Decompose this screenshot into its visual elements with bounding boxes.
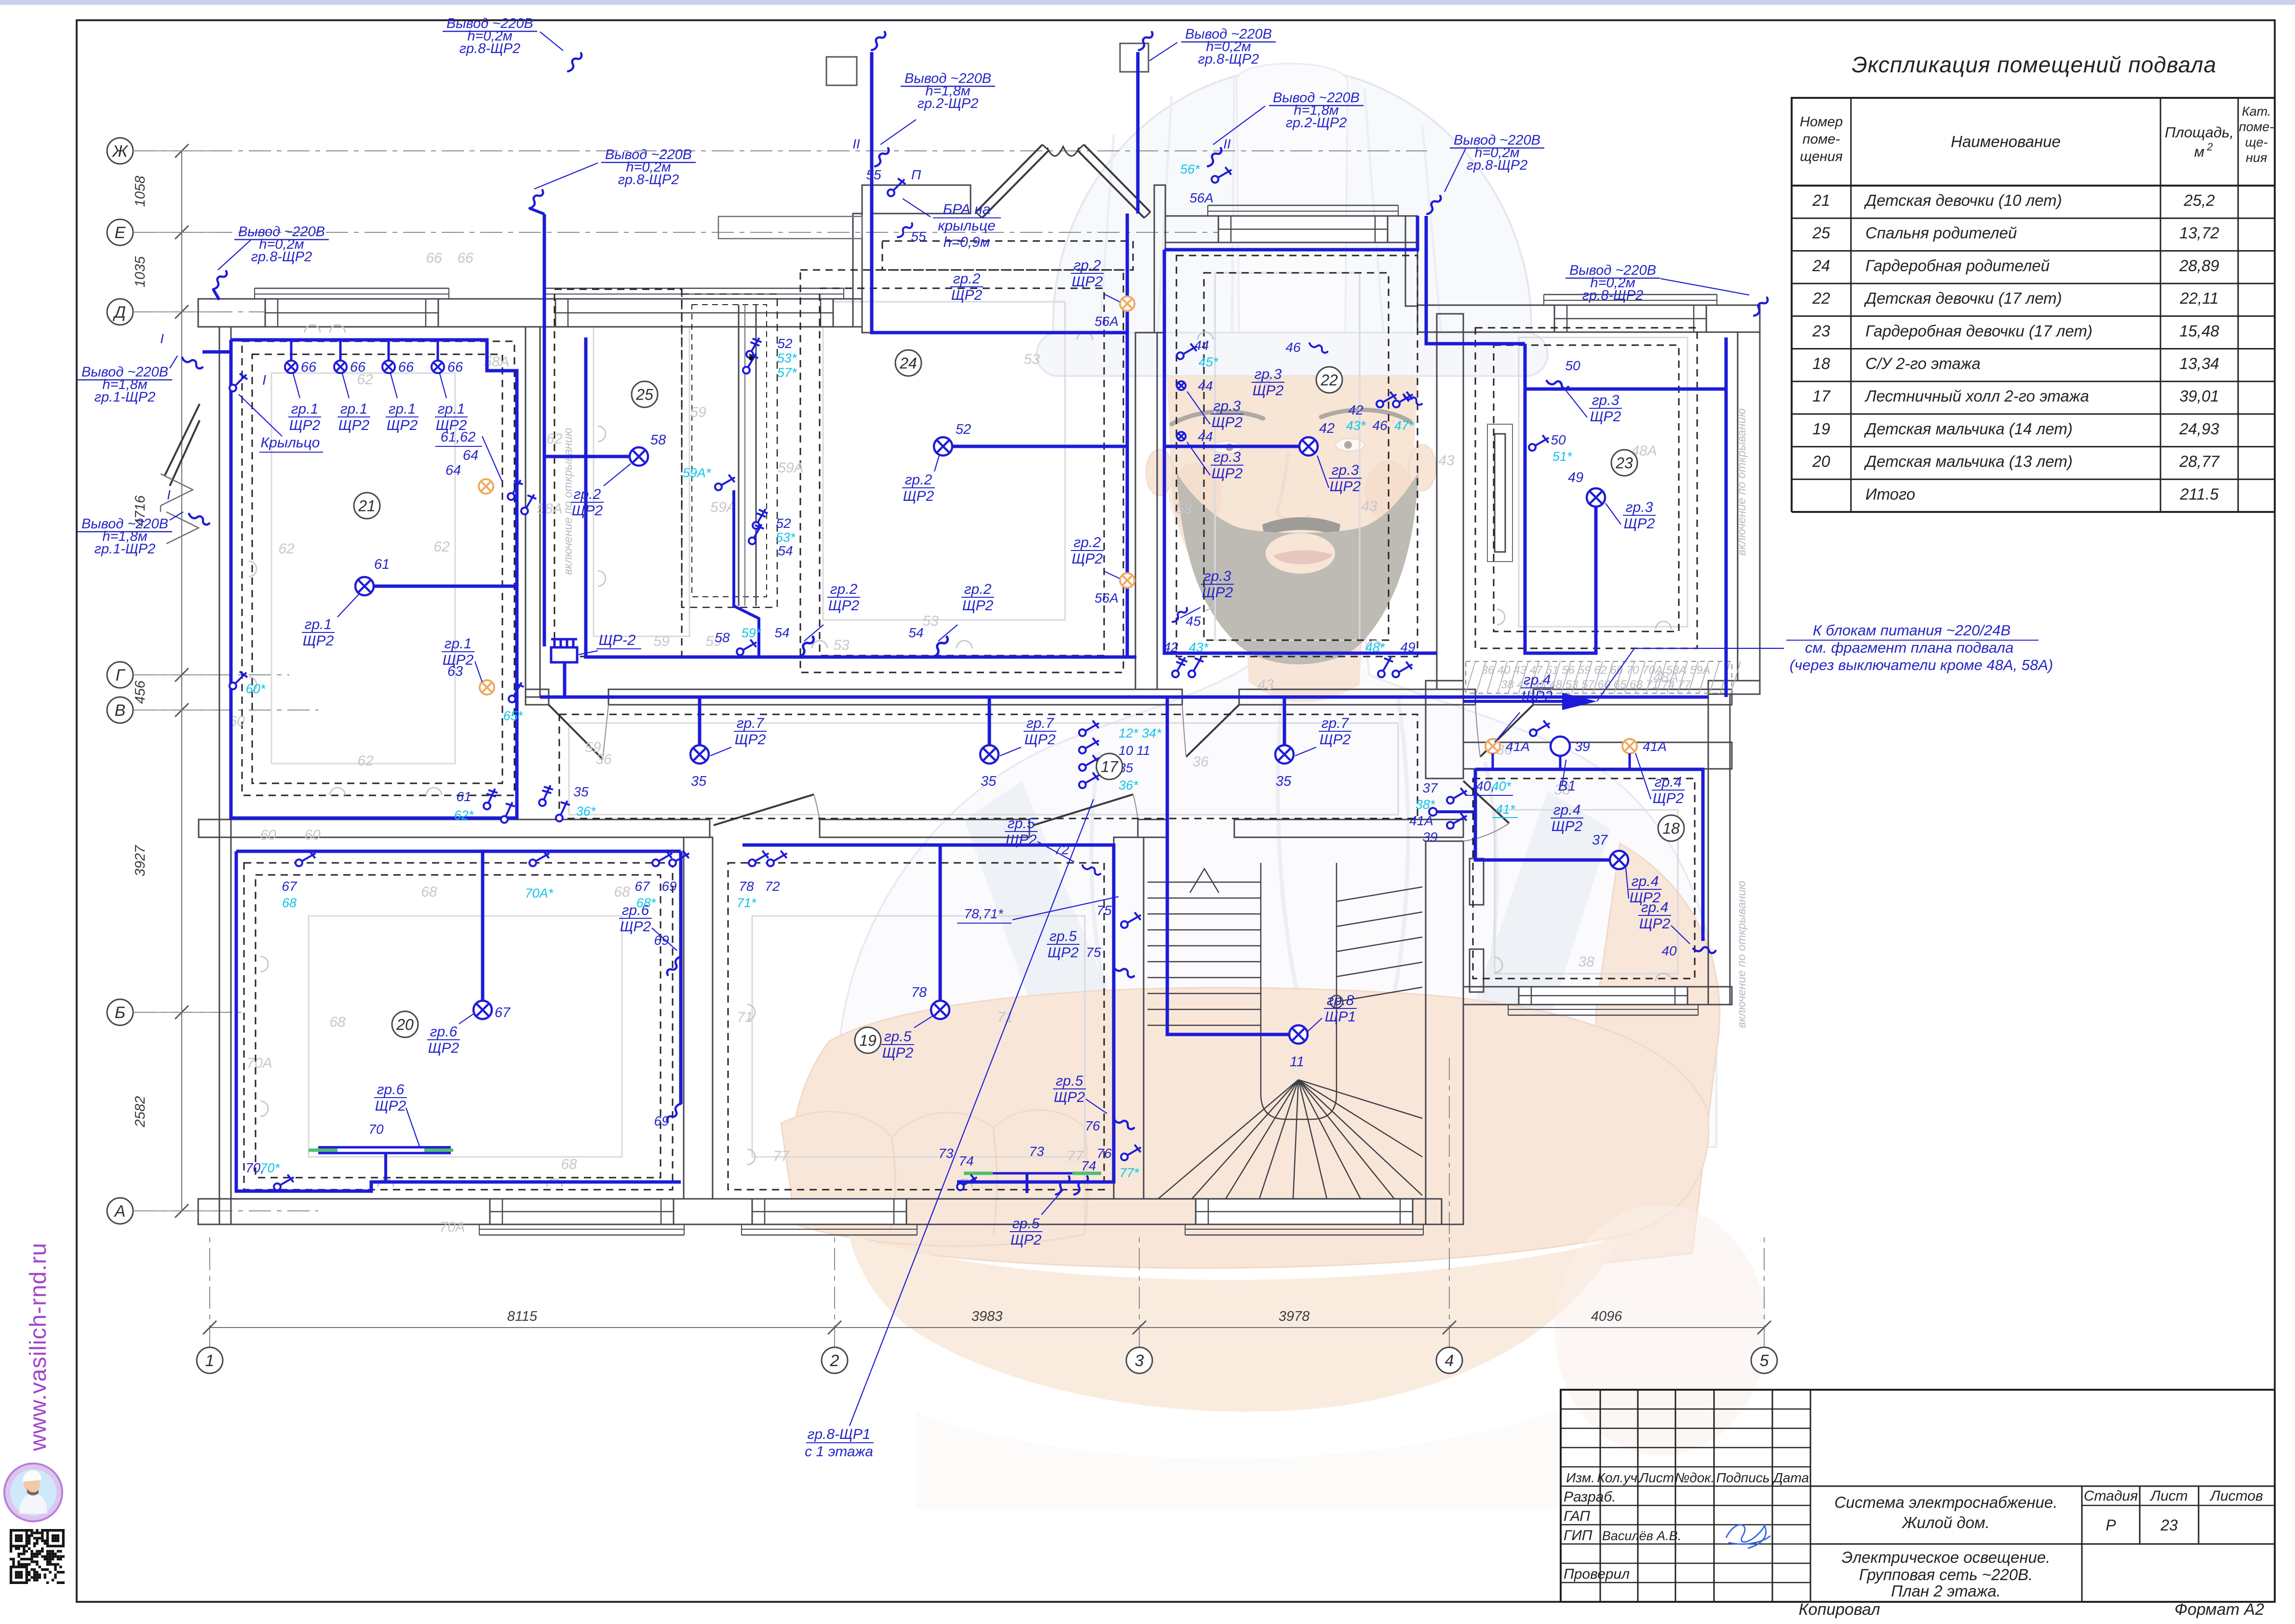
svg-text:71*: 71*	[737, 896, 757, 910]
svg-text:10 11: 10 11	[1119, 743, 1150, 758]
svg-text:А: А	[114, 1202, 126, 1221]
svg-text:К блокам питания ~220/24В: К блокам питания ~220/24В	[1813, 622, 2011, 639]
svg-text:55: 55	[866, 167, 881, 182]
svg-text:35: 35	[1276, 774, 1292, 789]
svg-text:41А: 41А	[1643, 739, 1667, 754]
svg-text:ще-: ще-	[2245, 135, 2268, 149]
svg-text:ЩР2: ЩР2	[303, 633, 334, 649]
svg-text:Лист: Лист	[2149, 1488, 2187, 1504]
svg-text:76: 76	[1085, 1118, 1100, 1133]
svg-text:гр.1: гр.1	[389, 401, 416, 417]
svg-text:74: 74	[1081, 1158, 1096, 1173]
svg-text:гр.4: гр.4	[1655, 774, 1682, 790]
svg-text:45: 45	[1186, 614, 1201, 629]
svg-text:гр.4: гр.4	[1632, 873, 1659, 889]
svg-text:58: 58	[650, 432, 666, 448]
svg-text:Лестничный холл 2-го этажа: Лестничный холл 2-го этажа	[1864, 387, 2089, 405]
svg-text:ЩР2: ЩР2	[1011, 1232, 1042, 1248]
svg-text:ЩР2: ЩР2	[962, 598, 994, 614]
svg-text:211.5: 211.5	[2179, 485, 2219, 503]
svg-text:68: 68	[614, 884, 630, 900]
svg-text:54: 54	[908, 625, 923, 640]
svg-text:67: 67	[495, 1005, 511, 1020]
svg-text:В: В	[115, 701, 126, 720]
svg-text:ЩР2: ЩР2	[951, 287, 983, 303]
svg-text:73: 73	[938, 1146, 954, 1161]
svg-text:крыльце: крыльце	[938, 218, 995, 234]
svg-text:ния: ния	[2246, 150, 2267, 165]
svg-text:гр.8-ЩР2: гр.8-ЩР2	[1198, 52, 1259, 67]
svg-text:ЩР2: ЩР2	[375, 1098, 406, 1114]
svg-text:Спальня родителей: Спальня родителей	[1865, 224, 2017, 242]
svg-text:54: 54	[774, 625, 789, 640]
svg-text:11: 11	[1290, 1054, 1304, 1070]
svg-text:62: 62	[546, 431, 563, 447]
svg-text:69: 69	[661, 879, 676, 894]
svg-text:гр.3: гр.3	[1626, 499, 1653, 515]
svg-text:Групповая сеть ~220В.: Групповая сеть ~220В.	[1859, 1566, 2033, 1584]
svg-text:ЩР2: ЩР2	[1006, 832, 1037, 848]
svg-text:67: 67	[282, 879, 297, 894]
svg-text:66: 66	[426, 250, 442, 266]
svg-text:ЩР2: ЩР2	[903, 488, 934, 504]
svg-text:75: 75	[1086, 945, 1101, 960]
svg-text:68: 68	[282, 896, 297, 910]
svg-text:гр.3: гр.3	[1214, 449, 1241, 465]
svg-text:гр.2: гр.2	[1074, 257, 1101, 273]
svg-text:ЩР2: ЩР2	[289, 417, 321, 433]
svg-text:гр.3: гр.3	[1592, 392, 1620, 408]
svg-text:52: 52	[956, 422, 971, 437]
svg-text:гр.4: гр.4	[1524, 672, 1551, 688]
svg-text:I: I	[160, 331, 164, 346]
svg-text:66: 66	[457, 250, 473, 266]
svg-text:73: 73	[1029, 1144, 1044, 1159]
svg-text:61: 61	[456, 789, 471, 804]
svg-text:Жилой дом.: Жилой дом.	[1901, 1514, 1989, 1531]
svg-text:3: 3	[1135, 1352, 1144, 1370]
svg-text:II: II	[852, 136, 860, 151]
svg-text:ЩР2: ЩР2	[1639, 916, 1671, 932]
svg-text:гр.8-ЩР1: гр.8-ЩР1	[808, 1426, 871, 1442]
svg-text:II: II	[1223, 136, 1231, 151]
svg-text:8115: 8115	[507, 1309, 538, 1324]
svg-text:гр.5: гр.5	[1050, 928, 1077, 944]
svg-text:70А: 70А	[439, 1219, 465, 1235]
svg-text:включение по открыванию: включение по открыванию	[1735, 881, 1748, 1028]
svg-text:50: 50	[1551, 432, 1566, 447]
svg-text:23: 23	[1812, 322, 1830, 340]
svg-text:м: м	[2194, 143, 2204, 160]
svg-text:24: 24	[899, 355, 917, 372]
svg-text:Электрическое освещение.: Электрическое освещение.	[1842, 1548, 2051, 1566]
svg-text:(через выключатели кроме 48А,: (через выключатели кроме 48А, 58А)	[1790, 657, 2053, 673]
svg-text:64: 64	[463, 448, 478, 463]
svg-text:Дата: Дата	[1772, 1470, 1809, 1485]
svg-text:ЩР2: ЩР2	[1025, 732, 1056, 748]
svg-text:36*: 36*	[1119, 778, 1139, 792]
svg-text:3978: 3978	[1279, 1309, 1310, 1324]
svg-text:ЩР2: ЩР2	[338, 417, 370, 433]
svg-text:поме-: поме-	[2239, 120, 2274, 134]
svg-text:58А: 58А	[537, 501, 562, 517]
svg-text:Наименование: Наименование	[1951, 133, 2061, 150]
svg-text:Экспликация помещений подвала: Экспликация помещений подвала	[1852, 52, 2216, 77]
svg-text:Гардеробная родителей: Гардеробная родителей	[1865, 256, 2050, 274]
svg-text:42: 42	[1348, 403, 1363, 417]
svg-text:37: 37	[1422, 780, 1438, 795]
svg-text:55: 55	[911, 229, 926, 244]
svg-text:456: 456	[133, 680, 148, 704]
svg-text:41А: 41А	[1506, 739, 1530, 754]
svg-text:60: 60	[260, 827, 276, 843]
svg-text:ЩР2: ЩР2	[1653, 791, 1684, 806]
svg-text:Детская мальчика (13 лет): Детская мальчика (13 лет)	[1863, 453, 2073, 470]
svg-text:П: П	[911, 167, 921, 182]
svg-text:43: 43	[1361, 498, 1377, 514]
svg-text:4096: 4096	[1591, 1309, 1622, 1324]
svg-text:2: 2	[2206, 141, 2213, 153]
svg-text:Формат А2: Формат А2	[2174, 1600, 2264, 1619]
svg-text:ЩР2: ЩР2	[387, 417, 418, 433]
svg-text:23: 23	[1615, 455, 1633, 472]
svg-text:4: 4	[1445, 1352, 1454, 1370]
svg-text:61: 61	[374, 557, 390, 572]
svg-text:36: 36	[1192, 754, 1209, 770]
svg-text:75: 75	[1096, 903, 1112, 918]
svg-text:71: 71	[737, 1009, 753, 1025]
svg-text:60*: 60*	[246, 682, 266, 696]
svg-text:13,72: 13,72	[2179, 224, 2219, 242]
svg-text:61,62: 61,62	[441, 429, 476, 445]
svg-text:гр.8-ЩР2: гр.8-ЩР2	[1467, 158, 1528, 173]
svg-text:гр.2: гр.2	[953, 271, 981, 287]
svg-text:ЩР2: ЩР2	[1624, 516, 1655, 532]
svg-text:65*: 65*	[503, 709, 524, 723]
svg-text:гр.1: гр.1	[305, 617, 332, 632]
svg-text:78: 78	[739, 879, 754, 894]
svg-text:ЩР2: ЩР2	[620, 919, 651, 935]
svg-text:18: 18	[1812, 354, 1830, 372]
svg-text:70: 70	[368, 1122, 384, 1137]
svg-text:48*: 48*	[1365, 640, 1386, 655]
svg-text:гр.2: гр.2	[574, 486, 601, 502]
svg-text:54: 54	[778, 543, 793, 558]
svg-text:гр.7: гр.7	[737, 715, 765, 731]
svg-text:66: 66	[350, 360, 366, 375]
svg-text:гр.4: гр.4	[1641, 899, 1669, 915]
svg-text:ЩР2: ЩР2	[735, 732, 766, 748]
svg-text:гр.8-ЩР2: гр.8-ЩР2	[1582, 288, 1644, 303]
svg-text:включение по открыванию: включение по открыванию	[562, 428, 575, 575]
svg-text:53: 53	[1024, 351, 1040, 367]
svg-text:56А: 56А	[1189, 190, 1214, 205]
svg-text:Р: Р	[2106, 1517, 2116, 1534]
svg-text:24: 24	[1812, 256, 1830, 274]
svg-text:ЩР2: ЩР2	[1072, 274, 1103, 290]
svg-text:47*: 47*	[1394, 418, 1415, 433]
svg-text:67: 67	[634, 879, 650, 894]
svg-text:23: 23	[2160, 1517, 2178, 1534]
svg-text:Площадь,: Площадь,	[2165, 124, 2234, 141]
svg-text:ГАП: ГАП	[1564, 1508, 1590, 1524]
svg-text:Подпись: Подпись	[1716, 1470, 1769, 1485]
svg-text:49: 49	[1400, 640, 1415, 655]
svg-text:План 2 этажа.: План 2 этажа.	[1891, 1582, 2001, 1600]
svg-text:36*: 36*	[576, 804, 596, 819]
svg-text:17: 17	[1101, 758, 1119, 776]
svg-text:ЩР1: ЩР1	[1325, 1009, 1356, 1025]
svg-text:ЩР2: ЩР2	[1072, 551, 1103, 567]
svg-text:62*: 62*	[454, 808, 474, 822]
svg-text:гр.5: гр.5	[1008, 816, 1035, 832]
svg-text:53: 53	[1175, 501, 1192, 517]
svg-text:68*: 68*	[636, 896, 657, 910]
svg-text:ЩР2: ЩР2	[1590, 409, 1621, 425]
svg-text:ЩР2: ЩР2	[1212, 415, 1243, 430]
svg-text:гр.3: гр.3	[1332, 462, 1359, 478]
svg-text:Кат.: Кат.	[2242, 104, 2271, 119]
svg-text:щения: щения	[1800, 149, 1842, 164]
svg-text:72: 72	[765, 879, 780, 894]
svg-text:43*: 43*	[1346, 418, 1366, 433]
svg-text:Лист: Лист	[1638, 1470, 1674, 1485]
svg-text:гр.1-ЩР2: гр.1-ЩР2	[94, 541, 156, 557]
svg-text:гр.1: гр.1	[340, 401, 368, 417]
svg-text:ЩР2: ЩР2	[828, 598, 860, 614]
svg-text:40: 40	[1661, 943, 1677, 958]
svg-text:70А: 70А	[246, 1055, 272, 1071]
svg-text:№док.: №док.	[1675, 1470, 1714, 1485]
svg-text:Номер: Номер	[1800, 114, 1843, 130]
svg-text:70*: 70*	[260, 1161, 280, 1175]
svg-text:гр.7: гр.7	[1322, 715, 1350, 731]
svg-text:Копировал: Копировал	[1798, 1600, 1880, 1619]
svg-text:60: 60	[304, 827, 321, 843]
svg-text:62: 62	[433, 539, 450, 555]
svg-text:1058: 1058	[133, 176, 148, 207]
svg-text:68: 68	[329, 1014, 346, 1030]
svg-text:38: 38	[1578, 954, 1594, 970]
svg-text:45*: 45*	[1199, 355, 1219, 369]
svg-text:43: 43	[1438, 453, 1455, 469]
svg-text:58: 58	[715, 630, 730, 645]
svg-text:39: 39	[1422, 830, 1437, 845]
svg-text:гр.2: гр.2	[905, 472, 932, 488]
svg-text:ЩР2: ЩР2	[1330, 479, 1361, 495]
svg-text:гр.1: гр.1	[445, 636, 472, 652]
svg-text:28,77: 28,77	[2179, 453, 2220, 470]
svg-text:35: 35	[573, 784, 589, 799]
svg-text:В1: В1	[1558, 778, 1576, 794]
svg-text:Детская девочки (17 лет): Детская девочки (17 лет)	[1863, 289, 2062, 307]
svg-text:гр.2-ЩР2: гр.2-ЩР2	[918, 96, 979, 111]
svg-text:гр.3: гр.3	[1255, 366, 1282, 382]
svg-text:21: 21	[358, 497, 376, 515]
svg-text:2: 2	[830, 1352, 839, 1370]
svg-text:66: 66	[447, 360, 463, 375]
svg-text:www.vasilich-rnd.ru: www.vasilich-rnd.ru	[26, 1243, 51, 1451]
svg-text:гр.7: гр.7	[1026, 715, 1054, 731]
svg-text:35: 35	[691, 774, 707, 789]
svg-text:25,2: 25,2	[2183, 191, 2214, 209]
svg-text:ЩР2: ЩР2	[1552, 819, 1583, 834]
svg-text:ГИП: ГИП	[1564, 1528, 1593, 1543]
svg-text:гр.2: гр.2	[830, 581, 858, 597]
svg-text:35: 35	[981, 774, 997, 789]
svg-text:с 1 этажа: с 1 этажа	[805, 1444, 873, 1460]
svg-text:12* 34*: 12* 34*	[1119, 726, 1162, 740]
svg-text:57*: 57*	[777, 365, 797, 380]
svg-text:74: 74	[958, 1154, 973, 1168]
svg-text:ЩР2: ЩР2	[428, 1040, 459, 1056]
svg-text:включение по открыванию: включение по открыванию	[1735, 408, 1748, 556]
svg-text:20: 20	[1812, 453, 1830, 470]
svg-text:БРА на: БРА на	[943, 201, 991, 217]
svg-text:64: 64	[445, 463, 461, 478]
svg-text:24,93: 24,93	[2179, 420, 2219, 438]
svg-text:17: 17	[1812, 387, 1831, 405]
svg-text:Кол.уч.: Кол.уч.	[1597, 1470, 1641, 1485]
svg-text:53*: 53*	[776, 530, 796, 545]
svg-text:Детская девочки (10 лет): Детская девочки (10 лет)	[1863, 191, 2062, 209]
svg-text:44: 44	[1198, 429, 1213, 444]
svg-text:39: 39	[1575, 739, 1590, 754]
svg-text:44: 44	[1194, 338, 1209, 353]
svg-text:59А*: 59А*	[683, 466, 712, 480]
svg-text:см. фрагмент плана подвала: см. фрагмент плана подвала	[1805, 639, 2014, 656]
svg-text:70А*: 70А*	[525, 886, 554, 900]
svg-text:44: 44	[1198, 378, 1213, 393]
svg-text:Крыльцо: Крыльцо	[261, 435, 320, 451]
svg-text:36 40 43 47 51 56 59 62: 36 40 43 47 51 56 59 62 66 70 70А 58А 59…	[1481, 664, 1710, 677]
svg-text:68: 68	[421, 884, 437, 900]
svg-text:гр.8: гр.8	[1327, 993, 1354, 1008]
svg-text:22: 22	[1320, 372, 1338, 389]
svg-text:62: 62	[357, 753, 374, 769]
svg-text:36: 36	[595, 752, 612, 767]
svg-text:59*: 59*	[742, 626, 762, 640]
svg-text:Б: Б	[115, 1004, 125, 1022]
svg-text:78,71*: 78,71*	[964, 906, 1004, 921]
svg-text:I: I	[262, 373, 266, 388]
svg-text:ЩР2: ЩР2	[1320, 732, 1351, 748]
svg-text:53*: 53*	[777, 351, 797, 365]
svg-text:77: 77	[773, 1148, 790, 1164]
svg-text:21: 21	[1812, 191, 1830, 209]
svg-text:гр.2-ЩР2: гр.2-ЩР2	[1286, 115, 1347, 131]
svg-text:гр.5: гр.5	[1056, 1073, 1083, 1089]
svg-text:Ж: Ж	[111, 142, 128, 161]
svg-text:56А: 56А	[1094, 591, 1119, 605]
svg-text:1035: 1035	[133, 256, 148, 287]
svg-text:42: 42	[1319, 421, 1335, 436]
svg-text:Листов: Листов	[2209, 1488, 2263, 1504]
svg-text:77*: 77*	[1120, 1166, 1140, 1180]
svg-text:гр.1: гр.1	[291, 401, 319, 417]
svg-text:гр.1: гр.1	[438, 401, 465, 417]
svg-text:66: 66	[398, 360, 414, 375]
svg-text:Г: Г	[116, 666, 126, 684]
svg-text:гр.4: гр.4	[1553, 802, 1581, 818]
svg-text:68: 68	[561, 1156, 577, 1172]
svg-text:ЩР2: ЩР2	[1048, 945, 1079, 961]
svg-text:Василёв А.В.: Василёв А.В.	[1602, 1529, 1681, 1543]
svg-text:ЩР2: ЩР2	[1253, 383, 1284, 399]
svg-text:гр.8-ЩР2: гр.8-ЩР2	[618, 172, 679, 188]
svg-text:62: 62	[278, 541, 295, 557]
svg-text:19: 19	[1812, 420, 1830, 438]
svg-text:78: 78	[911, 985, 927, 1000]
svg-text:Система электроснабжение.: Система электроснабжение.	[1835, 1493, 2058, 1511]
svg-text:гр.1-ЩР2: гр.1-ЩР2	[94, 389, 156, 405]
svg-text:50: 50	[1565, 358, 1580, 373]
svg-text:ЩР2: ЩР2	[1054, 1089, 1085, 1105]
svg-text:66: 66	[301, 360, 317, 375]
svg-text:43: 43	[1257, 677, 1274, 693]
svg-text:гр.5: гр.5	[884, 1029, 912, 1045]
svg-text:Д: Д	[112, 303, 126, 322]
svg-text:гр.3: гр.3	[1204, 568, 1231, 584]
svg-text:гр.2: гр.2	[964, 581, 992, 597]
svg-text:42: 42	[1163, 640, 1178, 655]
svg-text:39,01: 39,01	[2179, 387, 2219, 405]
svg-text:ЩР2: ЩР2	[1202, 585, 1233, 601]
svg-text:56А: 56А	[1094, 314, 1119, 329]
svg-text:ЩР2: ЩР2	[443, 652, 474, 668]
svg-text:25: 25	[635, 386, 653, 403]
svg-text:59: 59	[653, 633, 670, 649]
svg-text:гр.2: гр.2	[1074, 535, 1101, 550]
svg-text:41*: 41*	[1496, 802, 1516, 817]
svg-text:3927: 3927	[133, 845, 148, 876]
svg-text:56*: 56*	[1180, 162, 1201, 176]
svg-text:гр.6: гр.6	[377, 1082, 405, 1098]
svg-text:51*: 51*	[1552, 449, 1573, 464]
svg-text:Изм.: Изм.	[1566, 1470, 1595, 1485]
svg-text:С/У 2-го этажа: С/У 2-го этажа	[1865, 354, 1981, 372]
svg-text:13,34: 13,34	[2179, 354, 2219, 372]
svg-text:гр.8-ЩР2: гр.8-ЩР2	[251, 249, 312, 265]
svg-text:40*: 40*	[1491, 779, 1512, 793]
svg-text:37: 37	[1592, 832, 1608, 848]
svg-text:Стадия: Стадия	[2084, 1488, 2138, 1504]
svg-text:49: 49	[1568, 470, 1583, 485]
svg-text:22,11: 22,11	[2179, 289, 2218, 307]
svg-text:гр.3: гр.3	[1214, 398, 1241, 414]
svg-text:гр.8-ЩР2: гр.8-ЩР2	[459, 41, 521, 56]
svg-text:2582: 2582	[133, 1096, 148, 1128]
svg-text:I: I	[167, 487, 171, 502]
svg-text:46: 46	[1372, 418, 1388, 433]
svg-text:15,48: 15,48	[2179, 322, 2219, 340]
svg-text:гр.5: гр.5	[1012, 1216, 1040, 1232]
svg-text:гр.6: гр.6	[430, 1024, 458, 1040]
svg-text:ЩР2: ЩР2	[882, 1045, 914, 1061]
svg-text:Итого: Итого	[1865, 485, 1915, 503]
svg-text:19: 19	[859, 1032, 877, 1049]
svg-text:поме-: поме-	[1803, 132, 1840, 147]
svg-text:h=0,9м: h=0,9м	[944, 234, 990, 250]
svg-text:28,89: 28,89	[2179, 256, 2219, 274]
svg-text:25: 25	[1812, 224, 1830, 242]
svg-text:53: 53	[922, 613, 939, 629]
svg-text:69: 69	[654, 933, 669, 948]
svg-text:69: 69	[654, 1114, 669, 1128]
svg-text:Проверил: Проверил	[1564, 1566, 1630, 1582]
svg-text:3983: 3983	[972, 1309, 1003, 1324]
svg-text:18: 18	[1662, 820, 1680, 837]
